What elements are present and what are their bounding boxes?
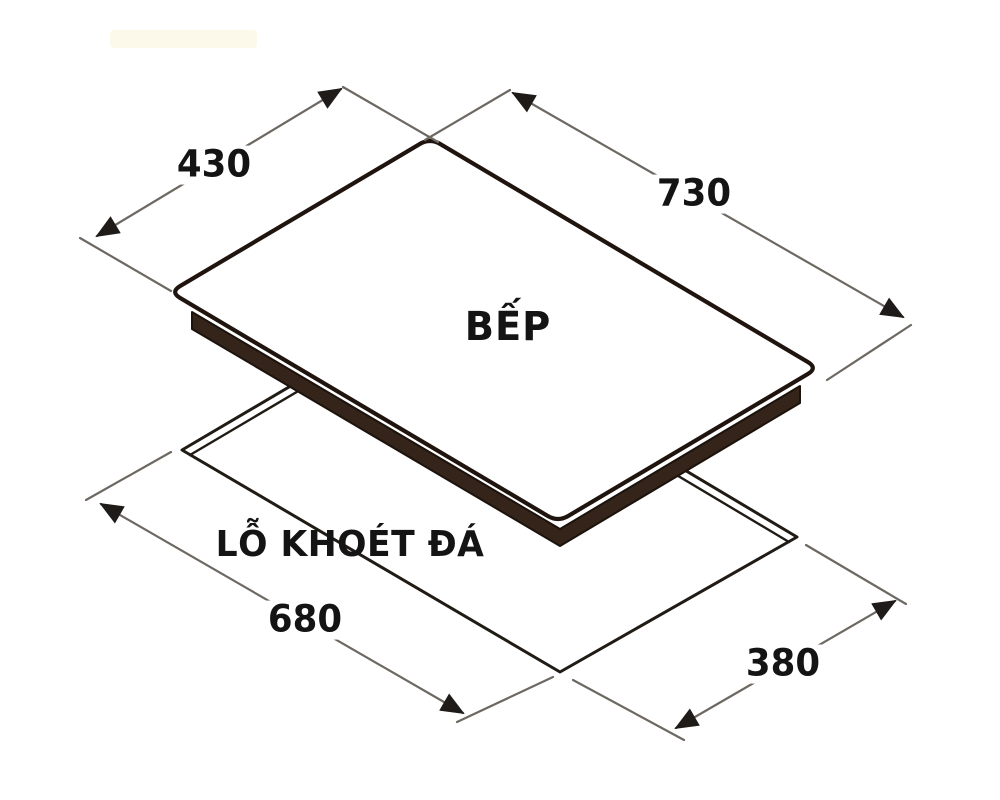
diagram-lines xyxy=(0,0,1000,800)
dimension-430-label: 430 xyxy=(171,146,257,185)
dimension-680-label: 680 xyxy=(262,601,348,640)
dimension-380-label: 380 xyxy=(740,645,826,684)
installation-diagram: 430 730 BẾP LỖ KHOÉT ĐÁ 680 380 xyxy=(0,0,1000,800)
cooktop-label: BẾP xyxy=(465,306,552,348)
cutout-label: LỖ KHOÉT ĐÁ xyxy=(216,526,485,564)
dimension-730-label: 730 xyxy=(651,175,737,214)
dimension-380-lines xyxy=(573,545,906,740)
